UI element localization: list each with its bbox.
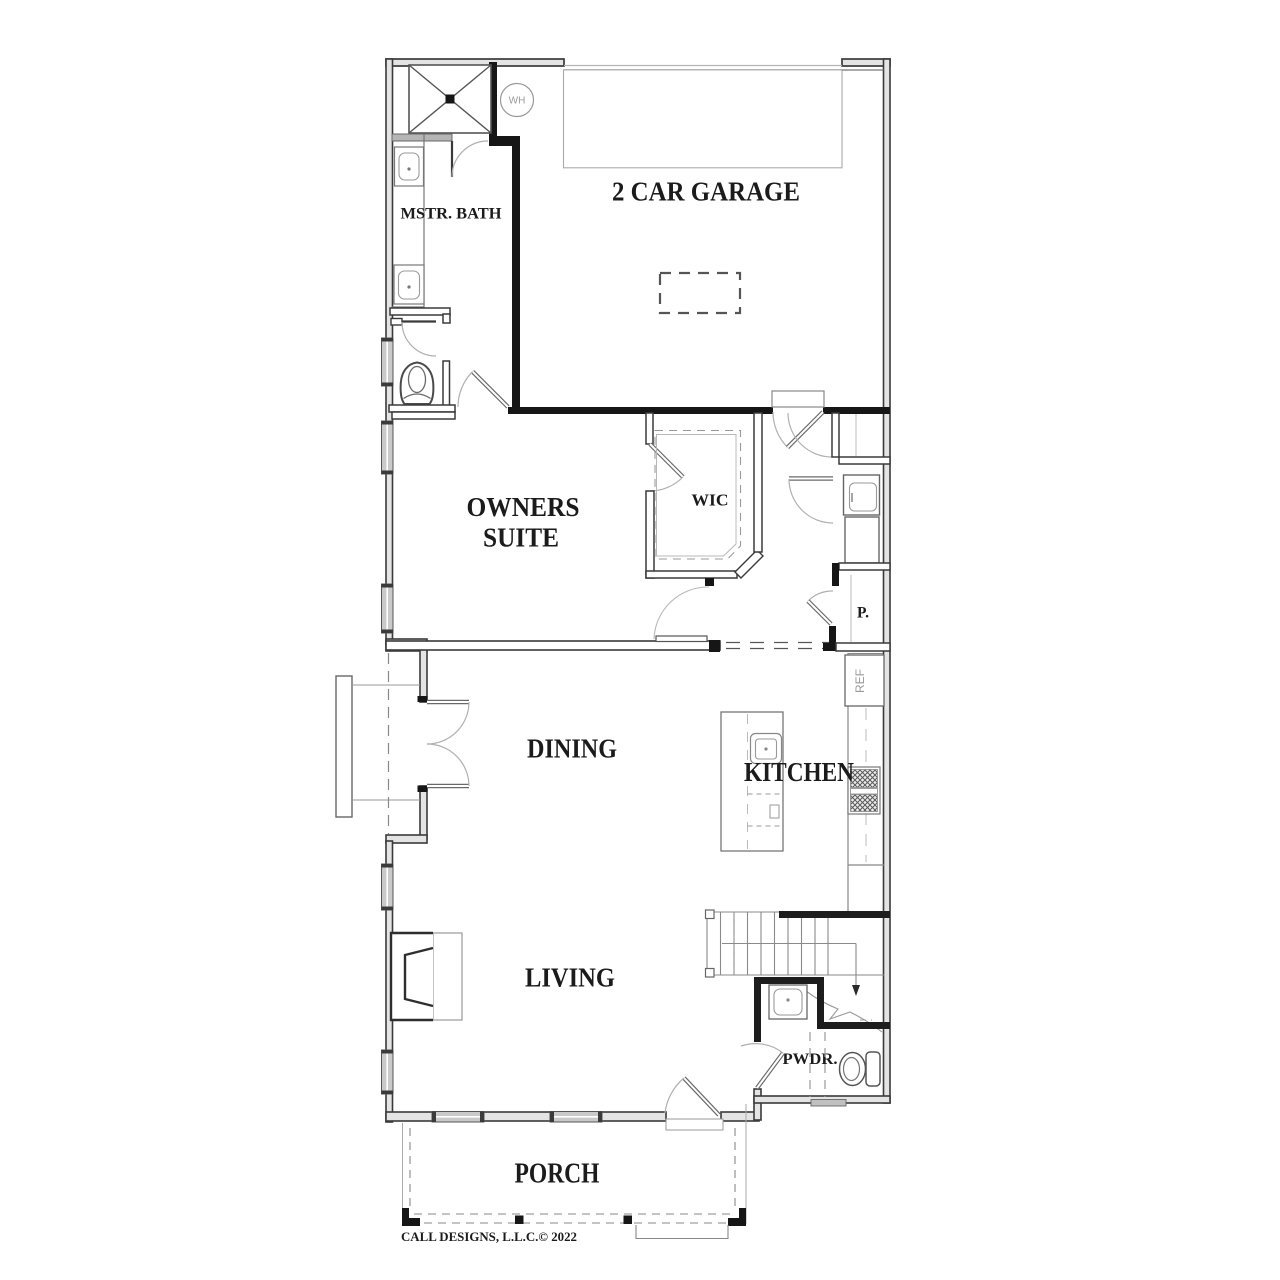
svg-text:OWNERS: OWNERS [467,492,580,522]
svg-text:PORCH: PORCH [515,1159,600,1190]
svg-text:REF: REF [853,669,867,693]
svg-text:DINING: DINING [527,734,617,764]
svg-text:LIVING: LIVING [525,963,615,993]
svg-text:KITCHEN: KITCHEN [744,757,854,787]
svg-text:SUITE: SUITE [483,523,559,553]
svg-text:CALL DESIGNS, L.L.C.© 2022: CALL DESIGNS, L.L.C.© 2022 [401,1229,577,1244]
svg-text:WH: WH [509,96,526,107]
svg-text:P.: P. [857,605,869,622]
svg-text:2 CAR GARAGE: 2 CAR GARAGE [612,177,800,207]
svg-text:WIC: WIC [692,491,729,510]
svg-text:MSTR. BATH: MSTR. BATH [401,206,503,223]
